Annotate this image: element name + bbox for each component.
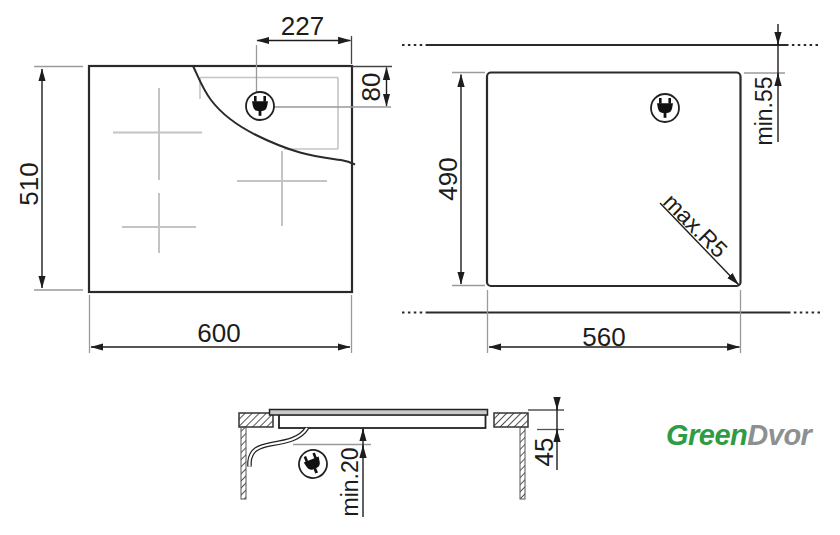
cabinet-wall-left: [241, 427, 246, 499]
hob-body-section: [279, 415, 486, 429]
technical-drawing: [0, 0, 840, 535]
dim-label-plug-offset-x: 227: [281, 13, 324, 39]
glass-plate-section: [270, 410, 488, 416]
countertop-section-left: [239, 413, 273, 427]
power-cable: [250, 428, 308, 467]
top-view: [34, 36, 392, 353]
dim-label-built-in-height: 45: [531, 438, 557, 467]
countertop-section-right: [494, 413, 528, 427]
installation-diagram-canvas: 227 80 510 600 490 560 min.55 max.R5 45 …: [0, 0, 840, 535]
power-plug-icon: [295, 446, 331, 482]
dim-label-hob-depth: 510: [16, 162, 42, 205]
cabinet-wall-right: [520, 427, 525, 499]
dim-label-min-wall-distance: min.55: [753, 76, 776, 145]
dim-label-plug-offset-y: 80: [358, 72, 384, 101]
brand-logo-gray-part: Dvor: [747, 419, 811, 451]
side-view: [239, 402, 564, 517]
power-plug-icon: [246, 92, 274, 120]
dim-label-hob-width: 600: [197, 320, 240, 346]
dim-label-cutout-depth: 490: [435, 157, 461, 200]
brand-logo: GreenDvor: [666, 421, 811, 450]
power-plug-icon: [651, 94, 679, 122]
brand-logo-green-part: Green: [666, 419, 747, 451]
dim-label-min-clearance: min.20: [339, 447, 362, 516]
dim-label-cutout-width: 560: [582, 324, 625, 350]
cutout-view: [402, 24, 821, 353]
